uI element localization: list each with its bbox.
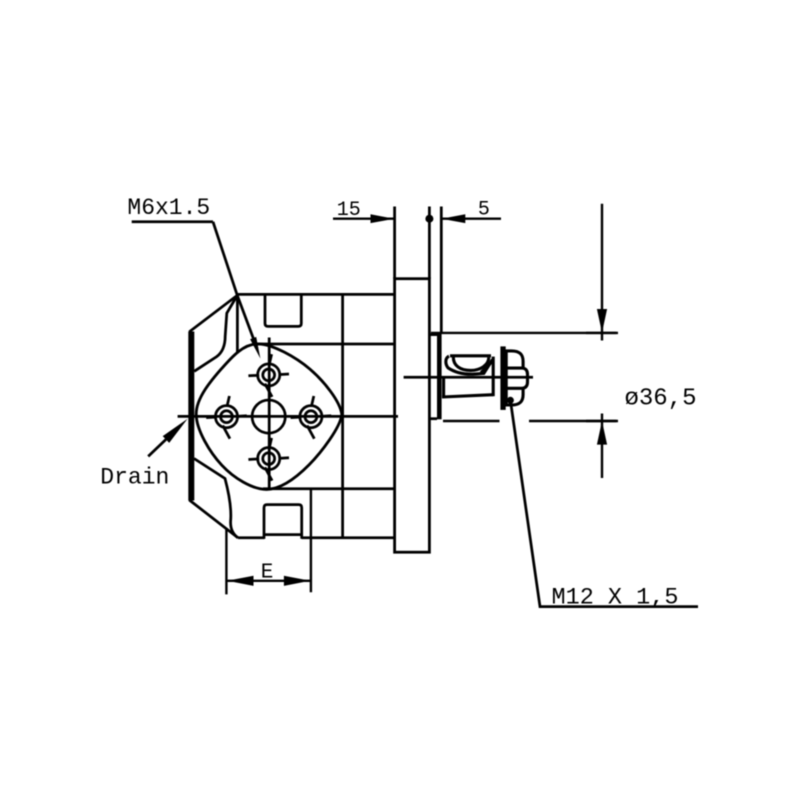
svg-text:ø36,5: ø36,5 <box>625 385 697 412</box>
svg-text:Drain: Drain <box>100 465 169 491</box>
svg-text:M12 X 1,5: M12 X 1,5 <box>552 584 679 611</box>
svg-text:E: E <box>261 561 274 584</box>
svg-text:M6x1.5: M6x1.5 <box>127 195 210 221</box>
svg-text:5: 5 <box>478 199 490 222</box>
svg-text:15: 15 <box>337 199 361 222</box>
